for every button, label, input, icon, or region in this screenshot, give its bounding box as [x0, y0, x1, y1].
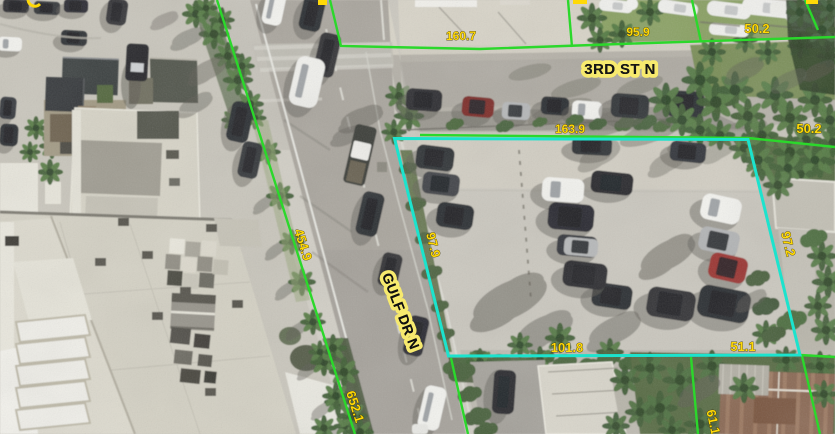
svg-text:160.7: 160.7: [446, 29, 476, 43]
svg-text:3RD ST N: 3RD ST N: [584, 61, 656, 78]
svg-text:51.1: 51.1: [730, 339, 755, 354]
svg-text:163.9: 163.9: [555, 122, 585, 136]
svg-text:95.9: 95.9: [626, 25, 650, 39]
svg-text:101.8: 101.8: [551, 340, 584, 355]
svg-text:50.2: 50.2: [796, 121, 821, 136]
svg-text:50.2: 50.2: [744, 21, 769, 36]
